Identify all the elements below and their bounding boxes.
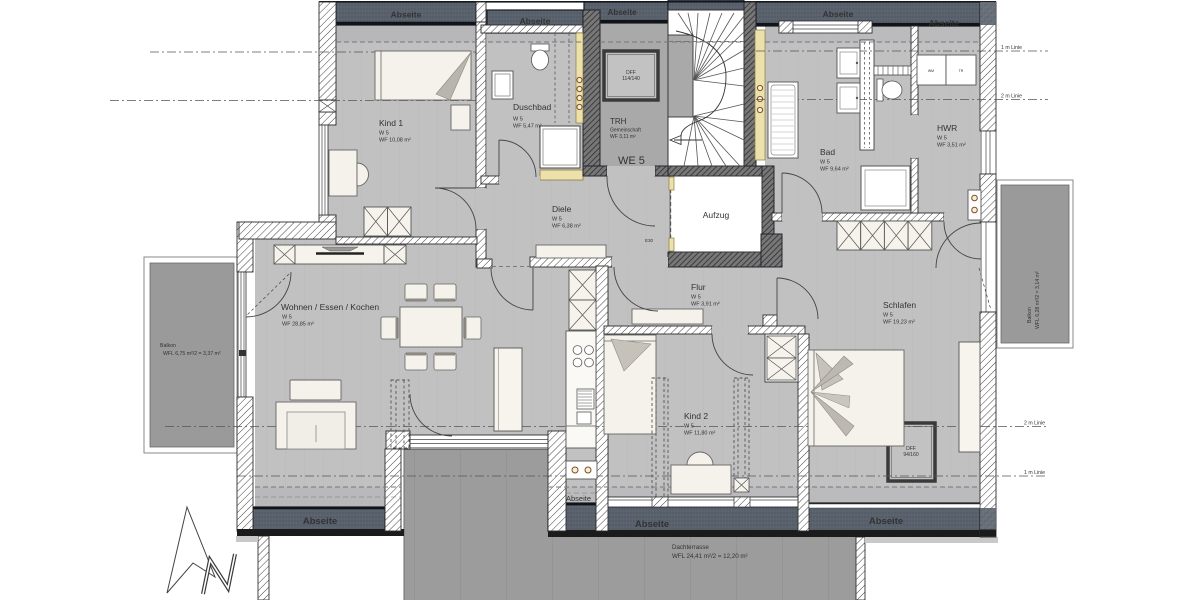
svg-text:1 m Linie: 1 m Linie (1001, 45, 1022, 51)
svg-text:Schlafen: Schlafen (883, 300, 916, 310)
svg-text:W 5: W 5 (883, 313, 893, 319)
svg-text:Kind 1: Kind 1 (379, 118, 403, 128)
svg-text:WE 5: WE 5 (618, 155, 645, 167)
svg-text:WFL 24,41 m²/2 = 12,20 m²: WFL 24,41 m²/2 = 12,20 m² (672, 553, 748, 560)
svg-text:Flur: Flur (691, 282, 706, 292)
svg-text:Abseite: Abseite (869, 516, 903, 527)
svg-text:W 5: W 5 (552, 217, 562, 223)
svg-text:2 m Linie: 2 m Linie (1024, 421, 1045, 427)
svg-text:Balkon: Balkon (160, 343, 176, 349)
svg-text:W 5: W 5 (691, 295, 701, 301)
svg-text:Abseite: Abseite (929, 18, 960, 28)
svg-text:HWR: HWR (937, 123, 957, 133)
svg-text:Abseite: Abseite (520, 16, 551, 26)
svg-text:W 5: W 5 (684, 424, 694, 430)
svg-text:W 5: W 5 (513, 117, 523, 123)
svg-text:Abseite: Abseite (635, 519, 669, 530)
svg-text:WF 9,64 m²: WF 9,64 m² (820, 167, 849, 173)
svg-text:Wohnen / Essen / Kochen: Wohnen / Essen / Kochen (281, 302, 379, 312)
svg-text:WFL 6,28 m²/2 = 3,14 m²: WFL 6,28 m²/2 = 3,14 m² (1035, 271, 1041, 329)
svg-text:W 5: W 5 (379, 131, 389, 137)
svg-text:1 m Linie: 1 m Linie (1024, 470, 1045, 476)
svg-text:WF 6,38 m²: WF 6,38 m² (552, 224, 581, 230)
svg-text:WF 19,23 m²: WF 19,23 m² (883, 320, 915, 326)
svg-text:W 5: W 5 (282, 315, 292, 321)
svg-text:Aufzug: Aufzug (703, 210, 730, 220)
svg-text:Abseite: Abseite (608, 8, 637, 17)
svg-text:Abseite: Abseite (823, 9, 854, 19)
svg-text:WF 3,11 m²: WF 3,11 m² (610, 134, 636, 140)
svg-text:WFL 6,75 m²/2 = 3,37 m²: WFL 6,75 m²/2 = 3,37 m² (163, 351, 221, 357)
svg-text:Gemeinschaft: Gemeinschaft (610, 128, 641, 134)
svg-text:94/160: 94/160 (903, 452, 919, 458)
svg-text:Kind 2: Kind 2 (684, 411, 708, 421)
svg-text:Abseite: Abseite (303, 516, 337, 527)
svg-text:WM: WM (928, 69, 934, 73)
svg-text:W 5: W 5 (820, 160, 830, 166)
svg-text:E30: E30 (645, 238, 654, 243)
svg-text:WF 3,91 m²: WF 3,91 m² (691, 302, 720, 308)
svg-text:114/140: 114/140 (622, 76, 640, 82)
svg-text:TRH: TRH (610, 117, 627, 126)
svg-text:Dachterrasse: Dachterrasse (672, 544, 709, 551)
svg-text:TR: TR (959, 69, 964, 73)
svg-text:W 5: W 5 (937, 136, 947, 142)
svg-text:WF 28,85 m²: WF 28,85 m² (282, 322, 314, 328)
svg-text:WF 11,80 m²: WF 11,80 m² (684, 431, 716, 437)
svg-text:Diele: Diele (552, 204, 572, 214)
svg-text:WF 10,08 m²: WF 10,08 m² (379, 138, 411, 144)
svg-text:Abseite: Abseite (566, 494, 591, 503)
svg-text:Balkon: Balkon (1027, 307, 1033, 323)
svg-text:WF 5,47 m²: WF 5,47 m² (513, 124, 542, 130)
svg-text:Abseite: Abseite (391, 10, 422, 20)
svg-text:Duschbad: Duschbad (513, 102, 552, 112)
svg-text:WF 3,51 m²: WF 3,51 m² (937, 143, 966, 149)
svg-text:Bad: Bad (820, 147, 835, 157)
svg-text:2 m Linie: 2 m Linie (1001, 94, 1022, 100)
